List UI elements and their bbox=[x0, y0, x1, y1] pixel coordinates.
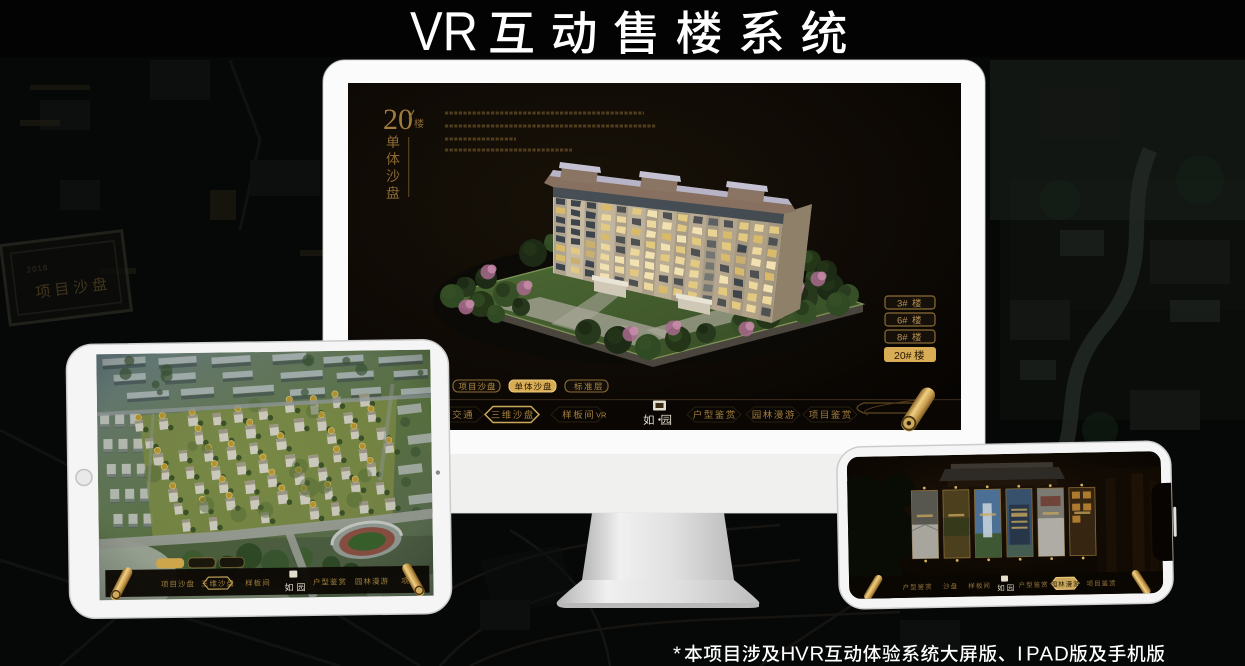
svg-text:I: I bbox=[1017, 643, 1023, 666]
svg-text:P: P bbox=[1026, 643, 1040, 666]
svg-text:D: D bbox=[1054, 643, 1069, 666]
svg-text:R: R bbox=[810, 643, 825, 666]
svg-text:20: 20 bbox=[383, 103, 413, 136]
svg-text:*: * bbox=[673, 643, 681, 666]
svg-text:V: V bbox=[795, 643, 809, 666]
svg-text:20#: 20# bbox=[894, 350, 912, 362]
svg-text:8#: 8# bbox=[897, 333, 908, 344]
svg-text:3#: 3# bbox=[897, 299, 908, 310]
svg-text:6#: 6# bbox=[897, 316, 908, 327]
svg-text:H: H bbox=[781, 643, 796, 666]
svg-text:A: A bbox=[1040, 643, 1054, 666]
svg-text:VR: VR bbox=[596, 411, 607, 420]
svg-text:VR: VR bbox=[410, 0, 478, 62]
